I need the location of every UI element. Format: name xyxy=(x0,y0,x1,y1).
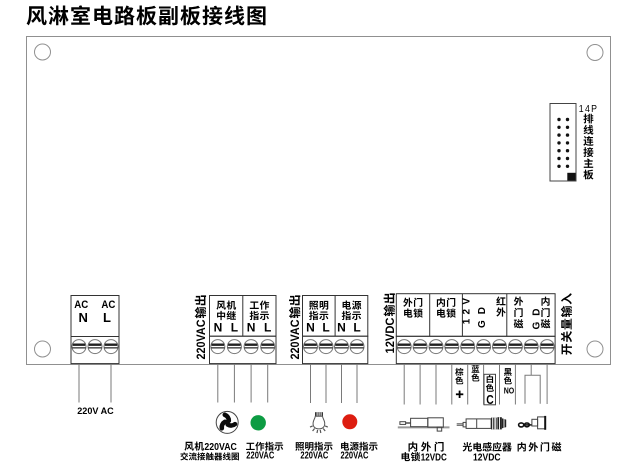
svg-text:12VDC: 12VDC xyxy=(421,452,447,463)
svg-text:N: N xyxy=(306,321,315,335)
svg-text:220V AC: 220V AC xyxy=(77,406,114,417)
svg-text:12VDC: 12VDC xyxy=(385,318,397,354)
svg-text:12VDC: 12VDC xyxy=(473,452,501,463)
svg-text:L: L xyxy=(322,321,329,335)
svg-text:220VAC: 220VAC xyxy=(290,320,302,360)
svg-text:220VAC: 220VAC xyxy=(341,450,369,461)
svg-text:NO: NO xyxy=(504,385,515,395)
svg-text:N: N xyxy=(247,321,256,335)
svg-text:220VAC: 220VAC xyxy=(300,450,328,461)
svg-text:220VAC: 220VAC xyxy=(204,442,237,453)
svg-text:L: L xyxy=(264,321,271,335)
svg-text:L: L xyxy=(353,321,360,335)
svg-text:L: L xyxy=(103,310,111,325)
svg-text:L: L xyxy=(231,321,238,335)
svg-text:C: C xyxy=(486,392,494,408)
svg-text:N: N xyxy=(214,321,223,335)
svg-text:N: N xyxy=(337,321,346,335)
svg-text:220VAC: 220VAC xyxy=(246,450,274,461)
svg-text:220VAC: 220VAC xyxy=(196,320,208,360)
svg-text:N: N xyxy=(79,310,88,325)
svg-text:14P: 14P xyxy=(579,103,599,115)
svg-text:12V: 12V xyxy=(461,298,472,325)
